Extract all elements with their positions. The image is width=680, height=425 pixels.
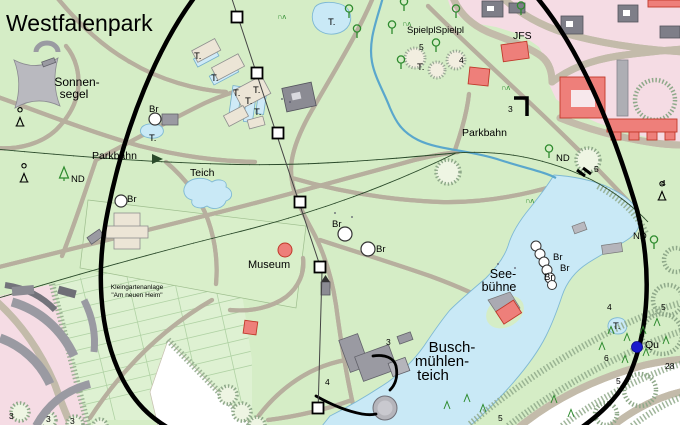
fountain-marker: [115, 195, 127, 207]
label-seebuehne: bühne: [482, 280, 517, 294]
label-parkbahn-west: Parkbahn: [92, 150, 137, 162]
path-number: 4: [661, 178, 666, 188]
park-title: Westfalenpark: [6, 10, 153, 36]
label-fountain: Br: [376, 244, 386, 255]
ground-dot: [281, 98, 283, 100]
museum-marker: [278, 243, 292, 257]
path-number: 5: [594, 164, 599, 174]
cable-car-pylon: [273, 128, 284, 139]
path-number: 4: [607, 302, 612, 312]
cable-car-pylon: [252, 68, 263, 79]
jfs-building: [501, 41, 529, 61]
label-t: T.: [253, 85, 260, 96]
label-spring: Qu: [645, 339, 659, 351]
label-t: T.: [613, 321, 620, 332]
shrub-glyph: ∩ʌ: [525, 196, 534, 205]
label-nd: ND: [71, 174, 85, 185]
label-museum: Museum: [248, 259, 290, 271]
path-number: 4: [325, 377, 330, 387]
path-number: 3: [9, 411, 14, 421]
label-seebuehne: See-: [490, 267, 516, 281]
cable-car-pylon: [295, 197, 306, 208]
path-number: 5: [616, 376, 621, 386]
map-viewport[interactable]: WestfalenparkSonnen-segelParkbahnParkbah…: [0, 0, 680, 425]
cable-car-pylon: [313, 403, 324, 414]
label-jfs: JFS: [513, 30, 532, 42]
label-buschmuehlenteich: teich: [417, 367, 449, 384]
path-number: 5: [661, 302, 666, 312]
ground-dot: [497, 263, 499, 265]
playground-structure: [429, 62, 445, 78]
path-number: 5: [498, 413, 503, 423]
label-t: T.: [149, 133, 156, 144]
label-t: T.: [194, 51, 201, 62]
path-number: 6: [604, 353, 609, 363]
path-number: 3: [386, 337, 391, 347]
label-fountain: Br: [553, 252, 563, 263]
path-number: 5: [419, 42, 424, 52]
label-t: T.: [417, 62, 424, 73]
shrub-glyph: ∩ʌ: [402, 19, 411, 28]
ground-dot: [334, 212, 336, 214]
ground-dot: [289, 101, 291, 103]
cable-car-pylon: [232, 12, 243, 23]
park-map[interactable]: WestfalenparkSonnen-segelParkbahnParkbah…: [0, 0, 680, 425]
label-parkbahn-east: Parkbahn: [462, 127, 507, 139]
shrub-glyph: ∩ʌ: [501, 83, 510, 92]
label-spielplatz: SpielplSpielpl: [407, 25, 464, 36]
path-number: 3: [70, 416, 75, 425]
label-kleingarten: "Am neuen Heim": [111, 292, 163, 299]
label-t: T.: [245, 96, 252, 107]
sonnensegel-structure: [14, 58, 60, 108]
label-fountain: Br: [127, 194, 137, 205]
label-sonnensegel: segel: [60, 87, 89, 101]
shrub-glyph: ∩ʌ: [277, 12, 286, 21]
label-nd: ND: [633, 231, 647, 242]
label-t: T.: [254, 107, 261, 118]
label-nd: ND: [556, 153, 570, 164]
label-t: T.: [328, 17, 335, 28]
fountain-marker: [361, 242, 375, 256]
label-fountain: Br: [544, 272, 554, 283]
label-kleingarten: Kleingartenanlage: [111, 284, 164, 291]
spring-marker: [632, 342, 643, 353]
ground-dot: [351, 216, 353, 218]
label-fountain: Br: [149, 104, 159, 115]
path-number: 3: [508, 104, 513, 114]
path-number: 3: [46, 414, 51, 424]
path-number: 28: [665, 361, 675, 371]
tower: [321, 282, 330, 295]
label-t: T.: [211, 73, 218, 84]
cable-car-pylon: [315, 262, 326, 273]
label-fountain: Br: [560, 263, 570, 274]
label-fountain: Br: [332, 219, 342, 230]
label-t: T.: [233, 88, 240, 99]
label-teich: Teich: [190, 167, 215, 179]
path-number: 4: [459, 55, 464, 65]
